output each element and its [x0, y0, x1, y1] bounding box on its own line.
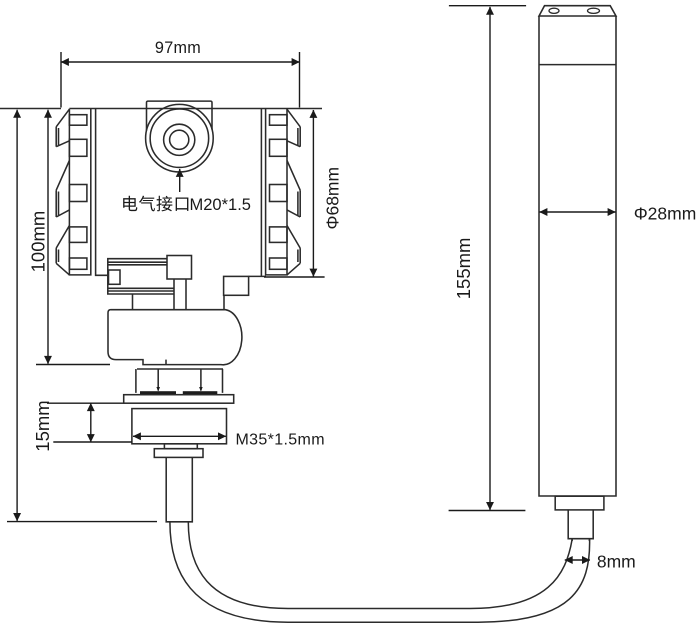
svg-text:15mm: 15mm: [32, 400, 53, 451]
svg-text:M35*1.5mm: M35*1.5mm: [236, 432, 325, 449]
svg-text:100mm: 100mm: [27, 211, 48, 273]
svg-text:97mm: 97mm: [155, 39, 201, 57]
svg-text:8mm: 8mm: [597, 552, 636, 572]
svg-text:155mm: 155mm: [453, 238, 474, 300]
svg-text:Φ68mm: Φ68mm: [323, 167, 343, 230]
svg-text:M20*1.5: M20*1.5: [190, 196, 251, 214]
svg-text:Φ28mm: Φ28mm: [634, 204, 697, 224]
